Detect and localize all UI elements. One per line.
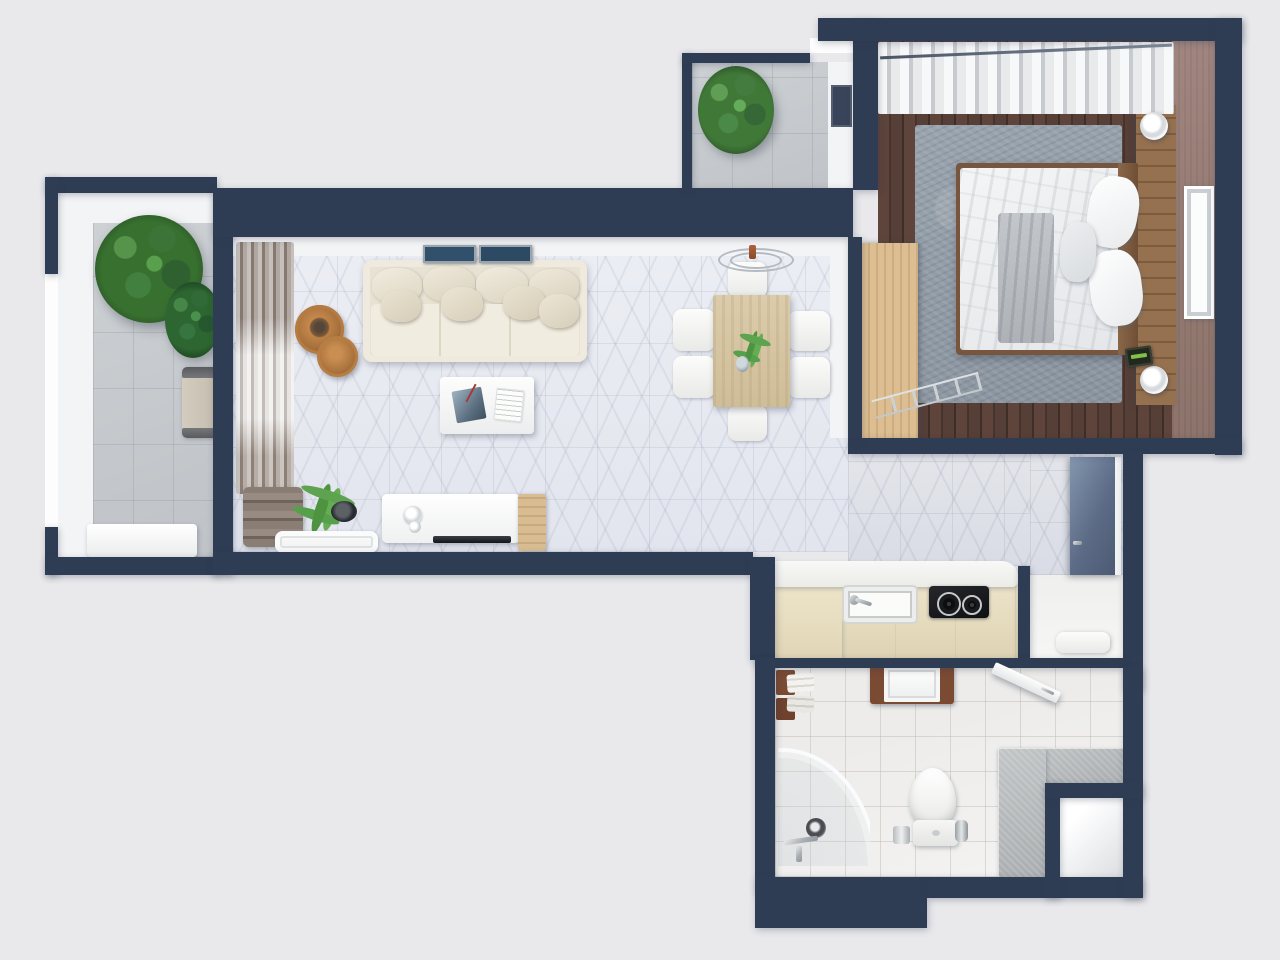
wall-niche-west: [1045, 783, 1060, 898]
stone-bench-side: [998, 748, 1046, 877]
wall-bathroom-south-west: [755, 877, 927, 928]
nesting-table-decor: [309, 317, 330, 338]
bath-towels-2: [787, 695, 815, 712]
pendant-lamp-rod: [749, 245, 756, 259]
wall-living-north: [213, 188, 853, 237]
wall-hall-east: [1123, 452, 1143, 690]
bedroom-window: [1184, 186, 1214, 319]
wall-bathroom-north: [755, 658, 1123, 668]
washing-machine-door: [884, 666, 940, 702]
balcony-bench: [87, 524, 197, 557]
coffee-table: [440, 377, 534, 434]
floor-plan: [0, 0, 1280, 960]
toilet-paper-holder: [893, 826, 910, 844]
wall-bathroom-south-east: [927, 877, 1143, 898]
wall-bedroom-east: [1215, 18, 1242, 455]
wall-kitchen-east: [1018, 566, 1030, 660]
dining-chair-east-2: [788, 357, 830, 398]
bedside-lamp-north: [1140, 112, 1168, 140]
wall-balcony-left-bottom: [45, 557, 217, 575]
picture-frame-right: [479, 245, 532, 263]
balcony-left-window: [45, 274, 58, 527]
dining-chair-south: [728, 405, 767, 441]
coffee-table-magazine: [495, 389, 524, 422]
picture-frame-left: [423, 245, 476, 263]
nesting-table-small: [317, 336, 358, 377]
cooktop-burner-right: [962, 595, 982, 615]
wall-living-south: [213, 552, 753, 575]
toilet-flush-button: [932, 830, 940, 836]
wall-kitchen-west: [750, 557, 775, 660]
wall-bedroom-south: [848, 438, 1242, 454]
entry-door-handle: [1073, 541, 1082, 545]
toilet-bowl: [909, 768, 956, 828]
balcony-window: [831, 85, 852, 127]
bath-towels-1: [786, 673, 814, 693]
hall-bench: [1056, 632, 1110, 653]
kitchen-corner-cabinet: [775, 574, 842, 661]
pendant-lamp-ring-inner: [730, 252, 782, 269]
white-floor-tray: [275, 531, 378, 553]
dining-chair-west-1: [673, 309, 715, 351]
utility-niche-floor: [1060, 798, 1123, 877]
shower-glass: [778, 748, 870, 866]
wall-living-west: [213, 192, 233, 575]
wood-cabinet: [518, 494, 546, 551]
wall-dining-bedroom-divider: [848, 237, 862, 438]
sofa-pillow: [381, 290, 421, 322]
dining-chair-west-2: [673, 356, 715, 398]
sofa-pillow: [441, 287, 483, 321]
wall-niche-north: [1045, 783, 1143, 798]
toilet-brush: [955, 820, 968, 842]
wall-balcony-top-north: [682, 53, 810, 63]
dining-chair-east-1: [788, 311, 830, 351]
entry-door: [1070, 457, 1121, 575]
wall-bedroom-north: [818, 18, 1242, 41]
tv-screen: [433, 536, 511, 543]
sofa-pillow: [539, 294, 579, 328]
alarm-clock-display: [1131, 353, 1147, 359]
bedside-lamp-south: [1140, 366, 1168, 394]
bathroom-door-handle: [1041, 687, 1055, 696]
living-drapes: [236, 242, 294, 494]
bed-blanket: [998, 213, 1054, 343]
dining-cup: [736, 356, 749, 372]
sofa: [363, 260, 587, 362]
cooktop-burner-left: [937, 592, 961, 616]
wall-balcony-top-west: [682, 53, 692, 190]
washing-machine: [870, 664, 954, 704]
shower-enclosure: [778, 748, 870, 866]
balcony-top-plant: [698, 66, 774, 154]
toilet-cistern: [913, 820, 958, 846]
wall-balcony-bedroom-divider: [853, 20, 878, 190]
wall-balcony-left-upper: [45, 177, 58, 274]
console-knob-small: [409, 521, 421, 533]
balcony-left-wall-face-left: [58, 193, 93, 557]
dining-wall-face-right: [830, 243, 848, 438]
corridor-floor: [848, 452, 1030, 566]
shower-faucet-riser: [796, 846, 802, 862]
living-plant-pot: [331, 501, 357, 522]
kitchen-counter: [775, 561, 1018, 587]
alarm-clock: [1125, 345, 1153, 367]
wall-balcony-left-top: [45, 177, 217, 193]
wall-bathroom-west: [755, 658, 775, 893]
